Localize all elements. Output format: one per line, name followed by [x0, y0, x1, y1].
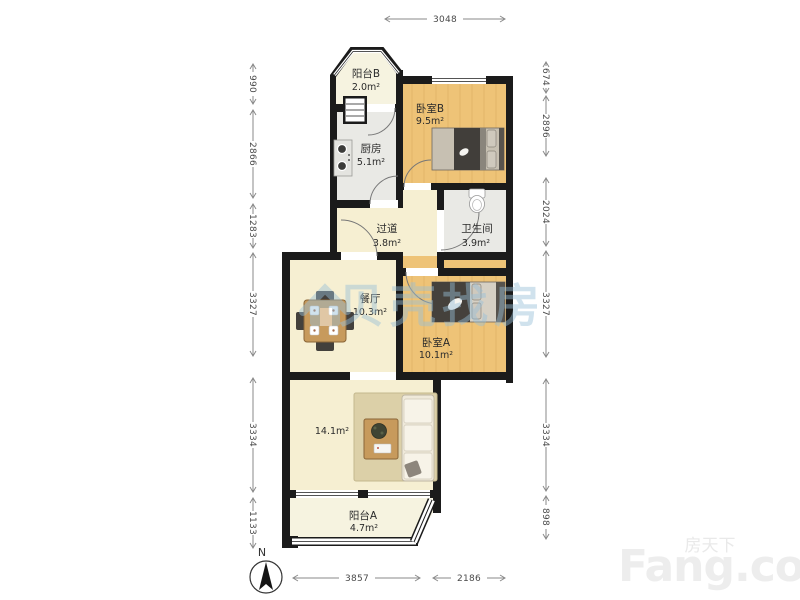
- room-area-label: 3.9m²: [462, 238, 490, 249]
- dimension-label: 674: [540, 68, 550, 86]
- dimension-label: 3334: [540, 423, 550, 447]
- room-area-label: 5.1m²: [357, 157, 385, 168]
- room-area-label: 4.7m²: [350, 523, 378, 534]
- room-name-label: 卧室A: [422, 336, 451, 349]
- dimension-label: 2186: [457, 574, 481, 584]
- room-area-label: 2.0m²: [352, 82, 380, 93]
- stove: [334, 140, 352, 176]
- compass-north-label: N: [258, 546, 266, 559]
- floorplan-canvas: 阳台B 2.0m² 卧室B 9.5m² 厨房 5.1m² 过道 3.8m² 卫生…: [0, 0, 800, 600]
- dimension-label: 3327: [247, 292, 257, 316]
- beike-house-door: [320, 308, 332, 326]
- dimension-label: 1283: [247, 214, 257, 238]
- toilet: [469, 189, 485, 213]
- room-name-label: 卫生间: [461, 222, 493, 235]
- compass: N: [250, 546, 282, 593]
- dimension-label: 3857: [345, 574, 369, 584]
- room-name-label: 阳台B: [352, 67, 380, 80]
- sofa: [402, 395, 434, 481]
- room-area-label: 10.1m²: [419, 350, 453, 361]
- door-gap-bathroom: [437, 210, 444, 252]
- door-gap-hall-dining: [341, 252, 377, 260]
- dimension-label: 898: [540, 508, 550, 526]
- bed-bedroom-b: [432, 128, 504, 170]
- room-name-label: 卧室B: [416, 102, 444, 115]
- room-area-label: 14.1m²: [315, 426, 349, 437]
- wall-segment: [437, 252, 513, 260]
- room-area-label: 9.5m²: [416, 116, 444, 127]
- door-gap-kitchen: [370, 200, 398, 208]
- wall-segment: [396, 372, 513, 380]
- watermark-center-text: 贝壳找房: [338, 279, 546, 333]
- dimension-label: 3048: [433, 15, 457, 25]
- dimension-label: 3334: [247, 423, 257, 447]
- window-living-left: [296, 490, 358, 498]
- wall-segment: [282, 252, 290, 548]
- wall-segment: [330, 104, 337, 260]
- window-bedroom-b: [432, 76, 486, 84]
- door-gap-bedroom-a: [406, 268, 438, 276]
- dimension-label: 2866: [247, 142, 257, 166]
- wall-segment: [506, 76, 513, 383]
- watermark-beike: 贝壳找房: [303, 279, 546, 333]
- watermark-fang-en: Fang.com: [618, 541, 800, 592]
- dimension-label: 990: [247, 75, 257, 93]
- dimension-label: 1133: [247, 511, 257, 535]
- wall-segment: [282, 372, 350, 380]
- watermark-fang: 房天下 Fang.com: [618, 536, 800, 592]
- dimension-label: 2024: [540, 200, 550, 224]
- compass-needle-icon: [259, 562, 273, 590]
- coffee-table: [364, 419, 398, 459]
- passage-dining-living: [350, 372, 396, 380]
- dimension-label: 2896: [540, 114, 550, 138]
- room-name-label: 厨房: [361, 142, 382, 155]
- floorplan-page: 阳台B 2.0m² 卧室B 9.5m² 厨房 5.1m² 过道 3.8m² 卫生…: [0, 0, 800, 600]
- window-living-right: [368, 490, 430, 498]
- room-name-label: 过道: [377, 222, 398, 235]
- door-gap-balcony-b: [367, 104, 395, 112]
- door-gap-bedroom-b: [404, 183, 431, 190]
- room-name-label: 阳台A: [349, 509, 378, 522]
- room-area-label: 3.8m²: [373, 238, 401, 249]
